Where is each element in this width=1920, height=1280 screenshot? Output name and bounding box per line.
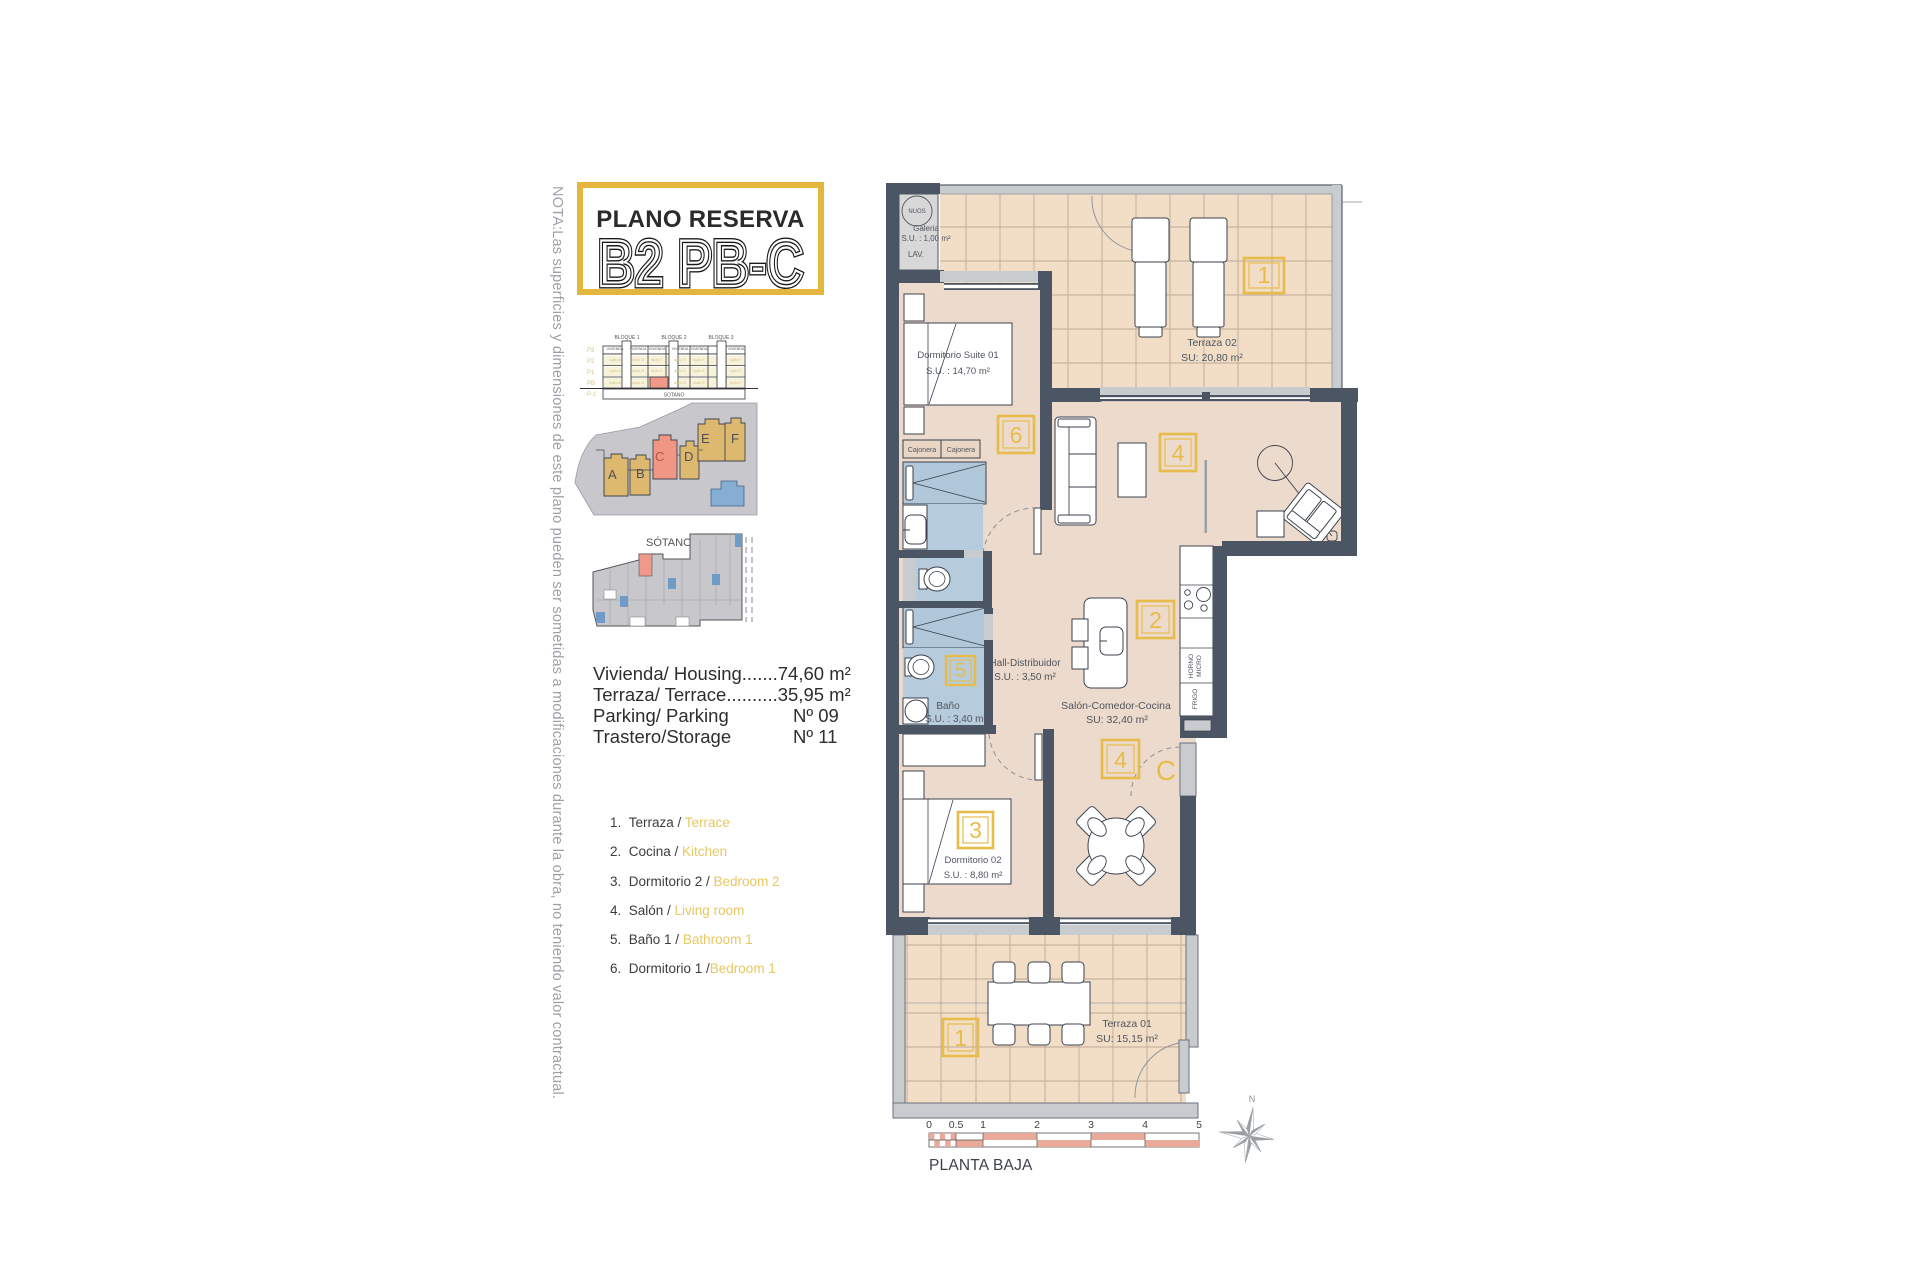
svg-text:Apto F: Apto F [730,380,742,385]
svg-text:N: N [1249,1094,1256,1104]
svg-text:0: 0 [926,1119,932,1131]
svg-text:Apto C: Apto C [651,368,663,373]
svg-text:PLANTA BAJA: PLANTA BAJA [929,1157,1033,1174]
svg-text:Apto A: Apto A [609,357,621,362]
svg-text:Baño: Baño [936,701,960,712]
svg-text:FRIGO: FRIGO [1192,689,1199,710]
svg-text:4: 4 [1142,1119,1148,1131]
svg-text:VIVIENDA: VIVIENDA [630,347,647,351]
svg-text:B: B [636,466,645,481]
svg-text:Dormitorio 02: Dormitorio 02 [944,855,1001,866]
svg-text:S.U. : 3,50 m²: S.U. : 3,50 m² [994,672,1056,683]
svg-text:5: 5 [955,660,966,682]
svg-text:VIVIENDA: VIVIENDA [728,347,745,351]
svg-text:5: 5 [1196,1119,1202,1131]
svg-text:SÓTANO: SÓTANO [646,536,692,549]
svg-text:BLOQUE 3: BLOQUE 3 [708,335,733,341]
svg-text:Apto B: Apto B [632,357,644,362]
svg-text:P3: P3 [587,348,595,354]
svg-text:3: 3 [1088,1119,1094,1131]
svg-text:6: 6 [1010,422,1023,448]
svg-text:Terraza 01: Terraza 01 [1102,1018,1152,1030]
svg-text:Apto B: Apto B [632,380,644,385]
svg-text:P2: P2 [587,359,595,365]
svg-text:Apto D: Apto D [674,368,686,373]
svg-text:VIVIENDA: VIVIENDA [607,347,624,351]
svg-text:BLOQUE 2: BLOQUE 2 [661,335,686,341]
svg-text:Apto A: Apto A [609,368,621,373]
svg-text:Salón-Comedor-Cocina: Salón-Comedor-Cocina [1061,700,1171,712]
svg-text:NUOS: NUOS [908,209,925,215]
svg-text:P1: P1 [587,370,595,376]
svg-text:SU: 32,40 m²: SU: 32,40 m² [1086,714,1148,726]
svg-text:Apto D: Apto D [674,357,686,362]
svg-text:P-1: P-1 [587,392,597,398]
svg-text:VIVIENDA: VIVIENDA [649,347,666,351]
svg-text:F: F [731,431,739,446]
svg-text:E: E [701,431,710,446]
svg-text:SOTANO: SOTANO [664,393,685,399]
svg-text:4: 4 [1172,440,1185,466]
svg-text:Apto B: Apto B [632,368,644,373]
svg-text:S.U. : 14,70 m²: S.U. : 14,70 m² [926,366,990,377]
svg-text:Cajonera: Cajonera [947,447,976,454]
svg-text:1: 1 [980,1119,986,1131]
svg-text:D: D [684,449,693,464]
svg-text:1: 1 [1258,262,1271,288]
svg-text:Terraza 02: Terraza 02 [1187,337,1237,349]
svg-text:Apto F: Apto F [730,357,742,362]
svg-text:MICRO: MICRO [1196,655,1203,677]
svg-text:2: 2 [1149,607,1162,633]
svg-text:A: A [608,467,617,482]
svg-text:VIVIENDA: VIVIENDA [691,347,708,351]
svg-text:S.U. : 1,00 m²: S.U. : 1,00 m² [901,234,951,243]
svg-text:PB: PB [587,381,595,387]
svg-text:S.U. : 8,80 m²: S.U. : 8,80 m² [944,870,1003,881]
svg-text:Apto E: Apto E [693,357,705,362]
svg-text:HORNO: HORNO [1188,654,1195,678]
svg-text:C: C [1156,755,1176,786]
svg-text:SU: 15,15 m²: SU: 15,15 m² [1096,1033,1158,1045]
svg-text:Cajonera: Cajonera [908,447,937,454]
svg-text:S.U. : 3,40 m²: S.U. : 3,40 m² [925,714,987,725]
svg-text:LAV.: LAV. [908,250,924,259]
svg-text:1: 1 [954,1025,967,1051]
svg-text:Hall-Distribuidor: Hall-Distribuidor [989,658,1061,669]
svg-text:B2 PB-C: B2 PB-C [598,230,804,292]
svg-text:Apto D: Apto D [674,380,686,385]
svg-text:Apto E: Apto E [693,368,705,373]
svg-text:Galeria: Galeria [913,224,939,233]
svg-text:C: C [655,449,664,464]
svg-text:3: 3 [969,817,982,843]
svg-text:SU: 20,80 m²: SU: 20,80 m² [1181,352,1243,364]
svg-text:Apto E: Apto E [693,380,705,385]
svg-text:VIVIENDA: VIVIENDA [672,347,689,351]
svg-text:Dormitorio Suite 01: Dormitorio Suite 01 [917,350,998,361]
svg-text:Apto A: Apto A [609,380,621,385]
svg-text:2: 2 [1034,1119,1040,1131]
svg-text:Apto F: Apto F [730,368,742,373]
svg-text:0.5: 0.5 [949,1119,964,1131]
svg-text:Apto C: Apto C [651,357,663,362]
svg-text:4: 4 [1114,747,1127,773]
svg-text:BLOQUE 1: BLOQUE 1 [614,335,639,341]
